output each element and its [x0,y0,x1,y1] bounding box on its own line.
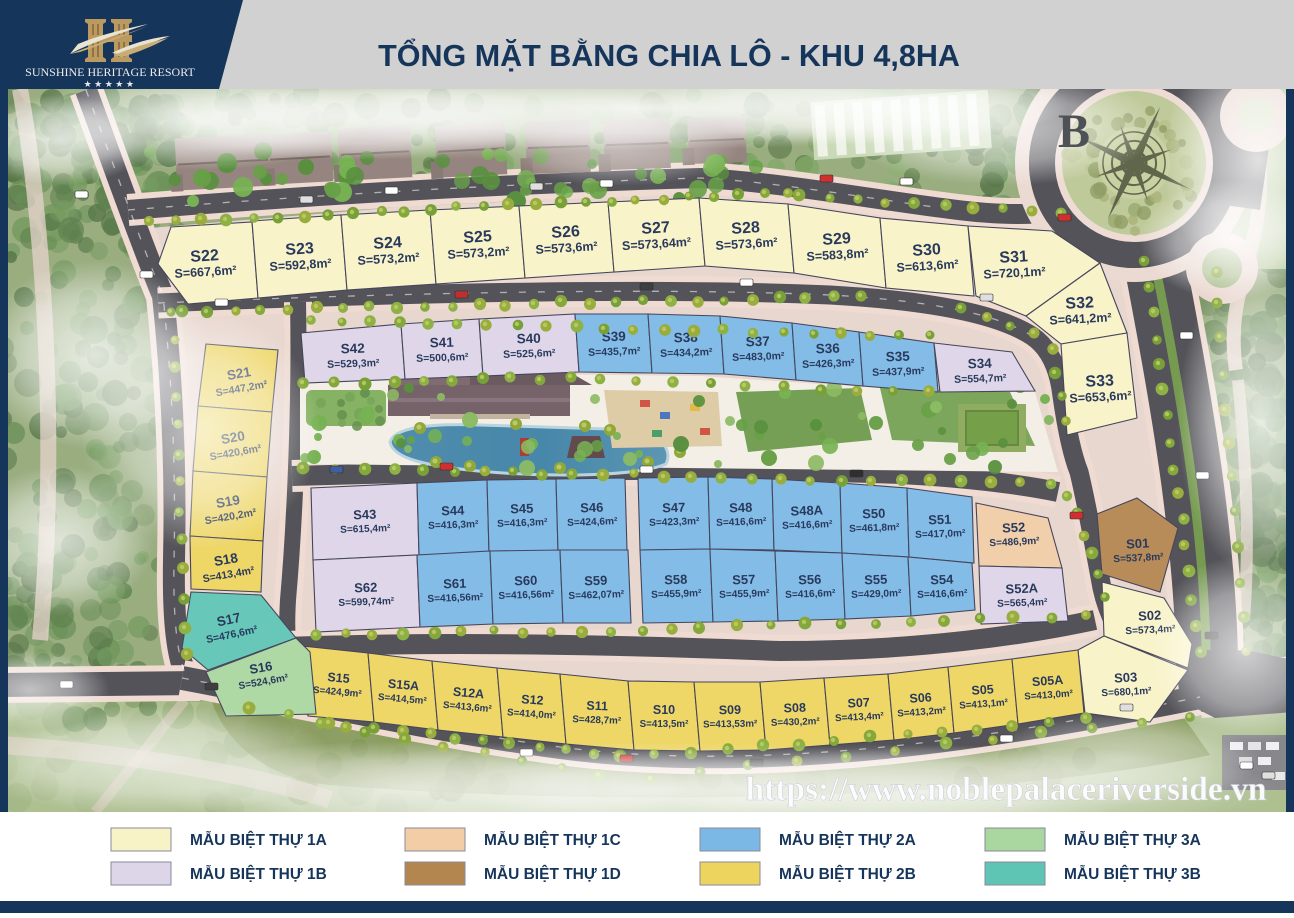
svg-text:★★★★★: ★★★★★ [84,79,137,89]
svg-text:MẪU BIỆT THỰ 2A: MẪU BIỆT THỰ 2A [779,831,916,849]
svg-text:MẪU BIỆT THỰ 1D: MẪU BIỆT THỰ 1D [484,865,621,883]
svg-text:MẪU BIỆT THỰ 3A: MẪU BIỆT THỰ 3A [1064,831,1201,849]
svg-text:MẪU BIỆT THỰ 1C: MẪU BIỆT THỰ 1C [484,831,621,849]
svg-text:MẪU BIỆT THỰ 2B: MẪU BIỆT THỰ 2B [779,865,916,883]
svg-text:MẪU BIỆT THỰ 1B: MẪU BIỆT THỰ 1B [190,865,327,883]
svg-text:MẪU BIỆT THỰ 3B: MẪU BIỆT THỰ 3B [1064,865,1201,883]
svg-text:TỔNG MẶT BẰNG CHIA LÔ - KHU 4,: TỔNG MẶT BẰNG CHIA LÔ - KHU 4,8HA [378,37,960,73]
svg-text:MẪU BIỆT THỰ 1A: MẪU BIỆT THỰ 1A [190,831,327,849]
svg-text:SUNSHINE HERITAGE RESORT: SUNSHINE HERITAGE RESORT [25,65,195,79]
